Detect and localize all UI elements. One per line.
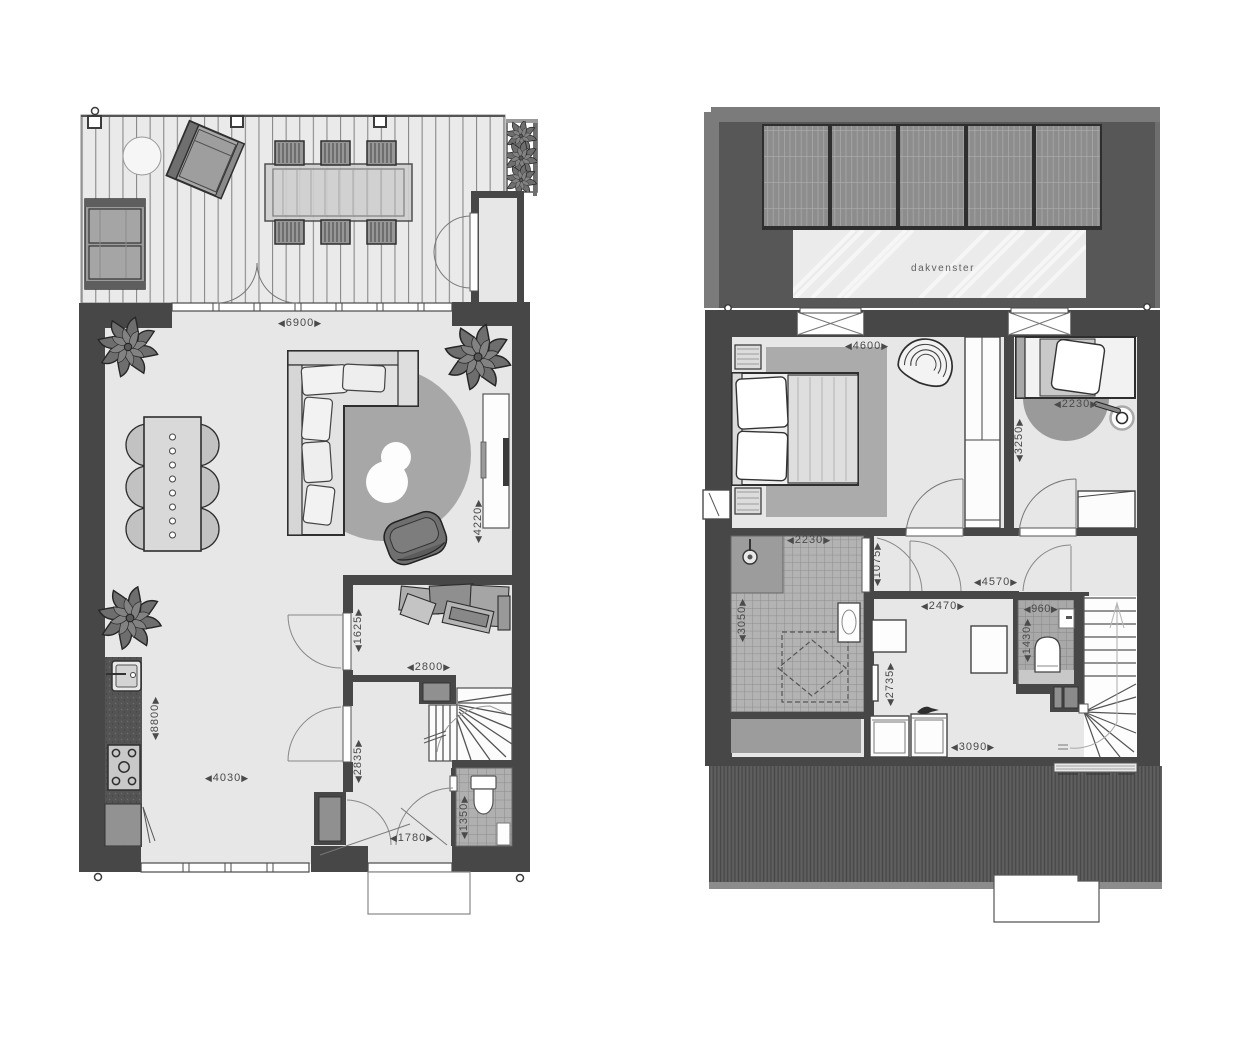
svg-text:◀1075▶: ◀1075▶ bbox=[871, 542, 883, 586]
svg-text:◀4570▶: ◀4570▶ bbox=[974, 576, 1018, 588]
svg-text:◀8800▶: ◀8800▶ bbox=[149, 696, 161, 740]
svg-text:◀4030▶: ◀4030▶ bbox=[205, 772, 249, 784]
svg-text:◀2230▶: ◀2230▶ bbox=[787, 534, 831, 546]
svg-text:◀1430▶: ◀1430▶ bbox=[1021, 618, 1033, 662]
svg-text:◀3250▶: ◀3250▶ bbox=[1013, 418, 1025, 462]
svg-text:◀960▶: ◀960▶ bbox=[1024, 603, 1059, 615]
svg-text:◀2800▶: ◀2800▶ bbox=[407, 661, 451, 673]
svg-text:◀6900▶: ◀6900▶ bbox=[278, 317, 322, 329]
svg-text:◀1625▶: ◀1625▶ bbox=[352, 608, 364, 652]
svg-text:◀4600▶: ◀4600▶ bbox=[845, 340, 889, 352]
svg-text:◀2735▶: ◀2735▶ bbox=[884, 662, 896, 706]
svg-text:◀1350▶: ◀1350▶ bbox=[458, 795, 470, 839]
svg-text:◀3050▶: ◀3050▶ bbox=[736, 598, 748, 642]
svg-text:◀4220▶: ◀4220▶ bbox=[472, 499, 484, 543]
svg-text:◀2835▶: ◀2835▶ bbox=[352, 739, 364, 783]
svg-text:◀2470▶: ◀2470▶ bbox=[921, 600, 965, 612]
svg-text:◀3090▶: ◀3090▶ bbox=[951, 741, 995, 753]
svg-text:◀2230▶: ◀2230▶ bbox=[1054, 398, 1098, 410]
svg-text:dakvenster: dakvenster bbox=[911, 263, 975, 274]
svg-text:◀1780▶: ◀1780▶ bbox=[390, 832, 434, 844]
